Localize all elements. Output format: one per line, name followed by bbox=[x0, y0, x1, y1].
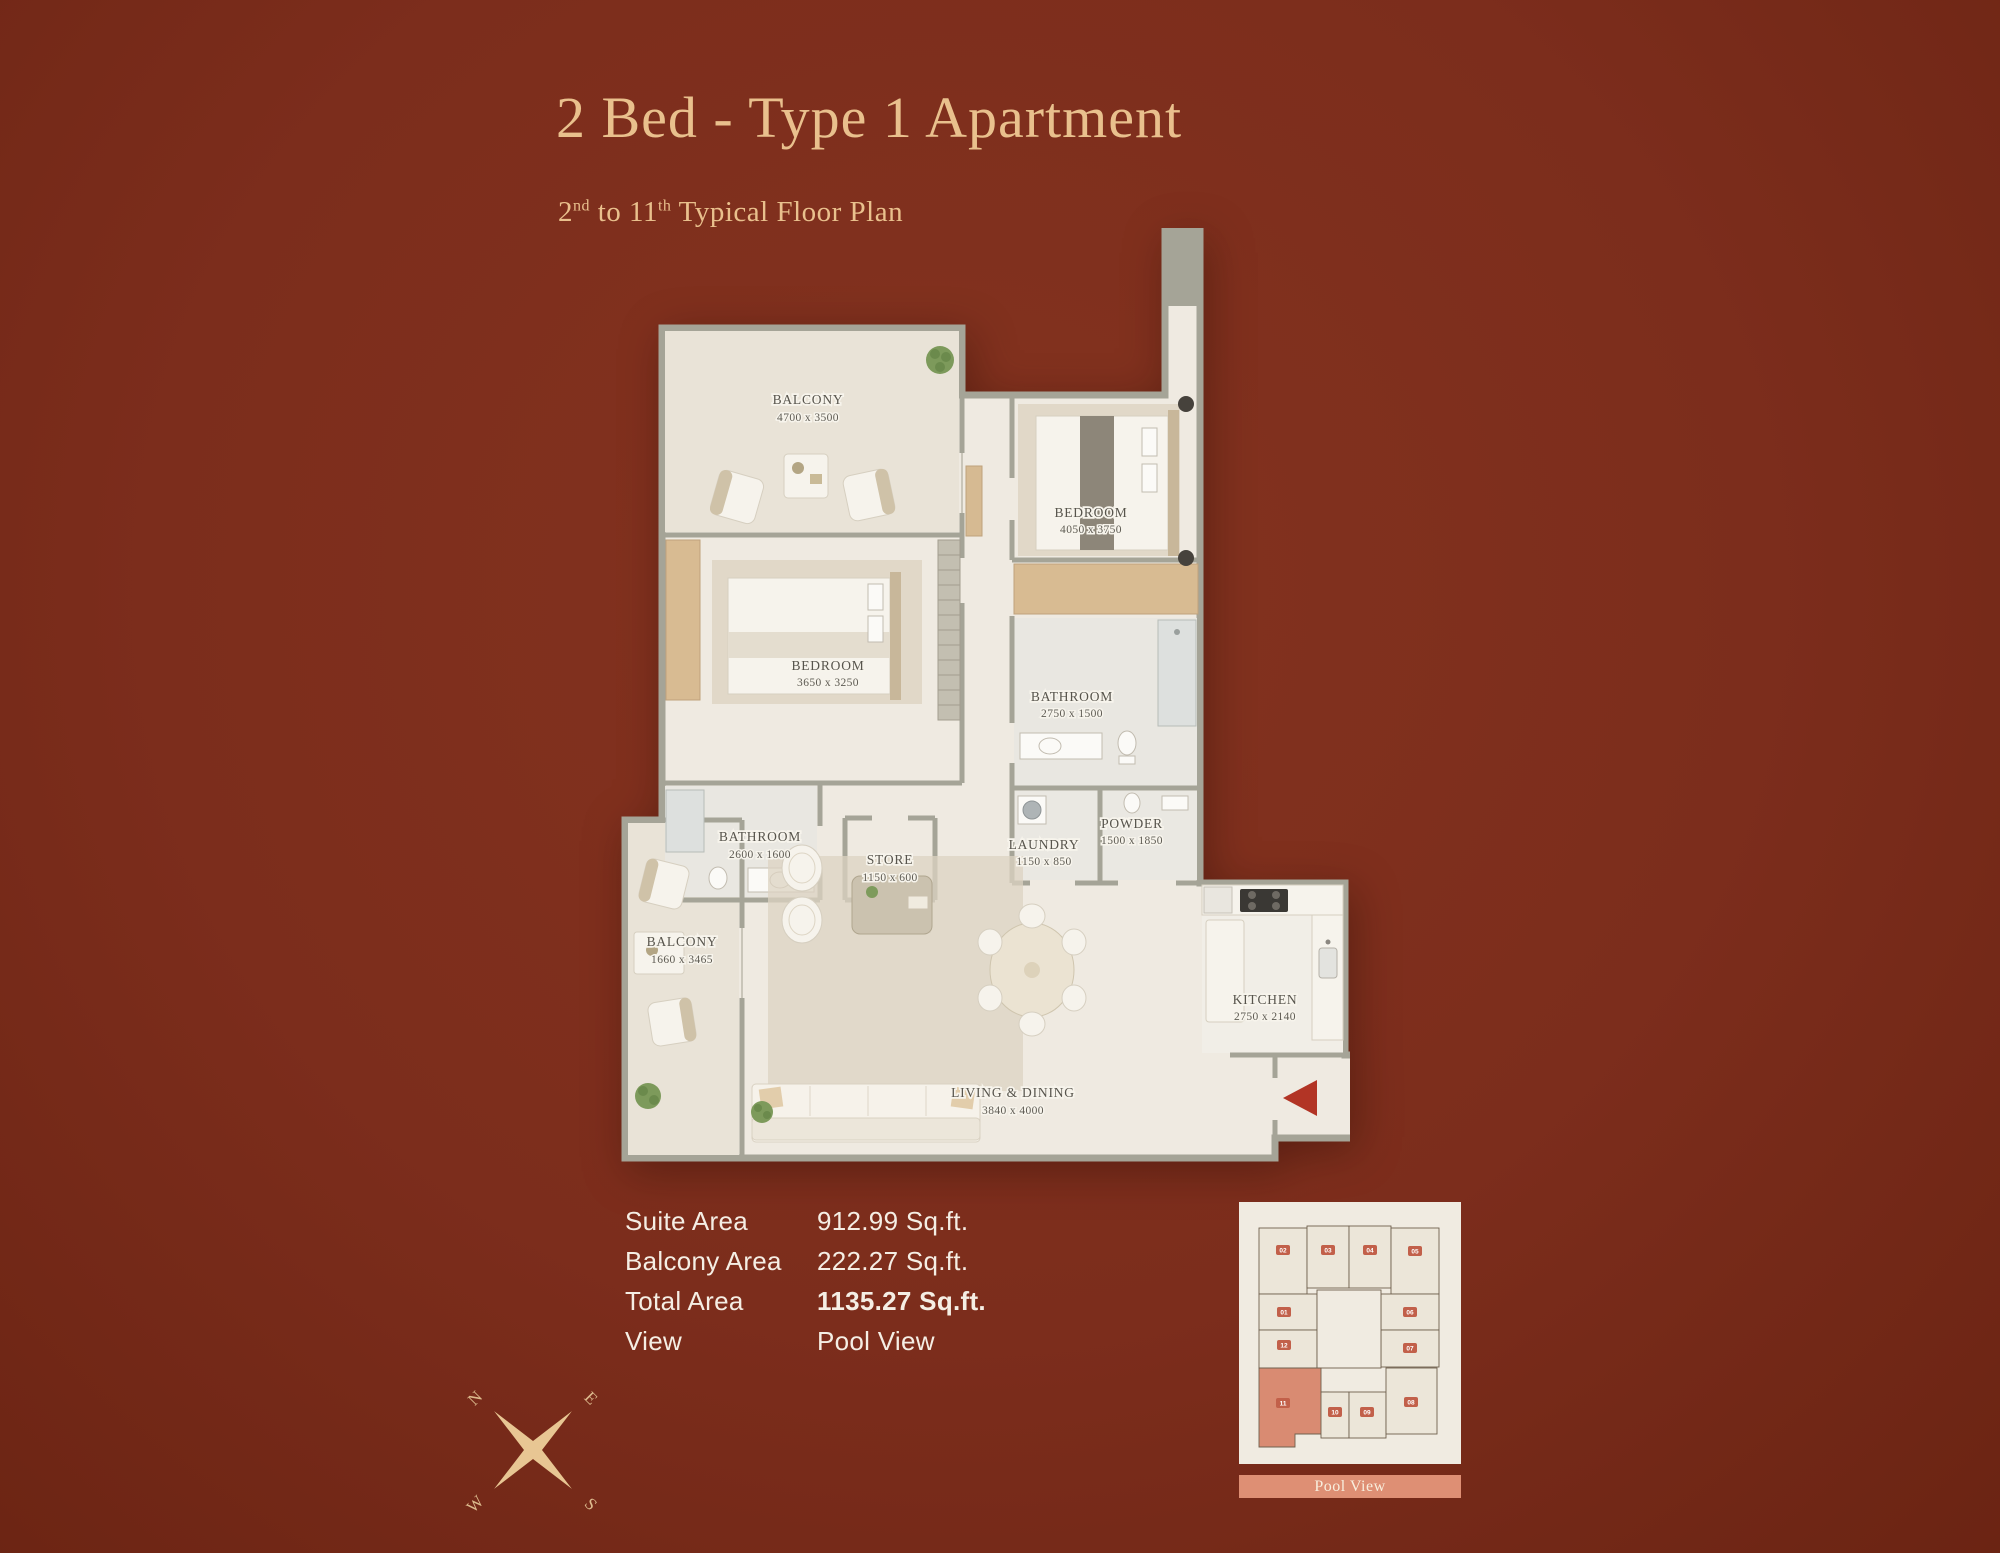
key-plan-drawing: 02 03 04 05 01 12 06 07 11 10 09 08 bbox=[1239, 1202, 1461, 1464]
area-value: 912.99 Sq.ft. bbox=[817, 1206, 986, 1237]
hall-console bbox=[966, 466, 982, 536]
unit-number: 05 bbox=[1411, 1249, 1419, 1256]
unit-number: 01 bbox=[1280, 1310, 1288, 1317]
unit-number: 07 bbox=[1406, 1346, 1414, 1353]
room-label: BALCONY bbox=[647, 934, 718, 949]
page-title: 2 Bed - Type 1 Apartment bbox=[556, 84, 1182, 151]
room-label: BATHROOM bbox=[719, 829, 801, 844]
room-dims: 3650 x 3250 bbox=[797, 677, 859, 689]
unit-number: 02 bbox=[1279, 1248, 1287, 1255]
room-dims: 3840 x 4000 bbox=[982, 1105, 1044, 1117]
view-label-bar: Pool View bbox=[1239, 1475, 1461, 1498]
plant bbox=[751, 1101, 773, 1123]
key-plan-units bbox=[1259, 1226, 1439, 1447]
area-value: 222.27 Sq.ft. bbox=[817, 1246, 986, 1277]
balcony-1-floor bbox=[665, 331, 959, 532]
closet-strip bbox=[666, 540, 700, 700]
bedroom-1-furniture bbox=[1018, 396, 1194, 566]
unit-number: 08 bbox=[1407, 1400, 1415, 1407]
room-label: BALCONY bbox=[773, 392, 844, 407]
room-dims: 1500 x 1850 bbox=[1101, 835, 1163, 847]
room-label: LAUNDRY bbox=[1009, 837, 1080, 852]
floor-plan-page: 2 Bed - Type 1 Apartment 2nd to 11th Typ… bbox=[0, 0, 2000, 1553]
area-label: Suite Area bbox=[625, 1206, 817, 1237]
ordinal-suffix: nd bbox=[573, 197, 590, 214]
wardrobe bbox=[938, 540, 960, 720]
room-dims: 1660 x 3465 bbox=[651, 954, 713, 966]
room-dims: 4050 x 3750 bbox=[1060, 524, 1122, 536]
compass-south: S bbox=[581, 1494, 601, 1514]
floor-plan: BALCONY 4700 x 3500 BEDROOM 4050 x 3750 … bbox=[620, 228, 1350, 1168]
unit-number: 06 bbox=[1406, 1310, 1414, 1317]
wall-stub bbox=[1165, 230, 1200, 306]
room-label: BEDROOM bbox=[1054, 505, 1127, 520]
compass-icon: N E S W bbox=[453, 1370, 613, 1530]
room-label: STORE bbox=[867, 852, 914, 867]
compass-west: W bbox=[463, 1491, 488, 1516]
area-label: Balcony Area bbox=[625, 1246, 817, 1277]
plant bbox=[926, 346, 954, 374]
compass-east: E bbox=[580, 1388, 601, 1409]
room-dims: 2600 x 1600 bbox=[729, 849, 791, 861]
room-dims: 1150 x 850 bbox=[1016, 856, 1071, 868]
area-label: Total Area bbox=[625, 1286, 817, 1317]
unit-number-highlighted: 11 bbox=[1280, 1401, 1287, 1408]
unit-number: 03 bbox=[1324, 1248, 1332, 1255]
unit-number: 09 bbox=[1363, 1410, 1371, 1417]
area-details: Suite Area 912.99 Sq.ft. Balcony Area 22… bbox=[625, 1206, 986, 1357]
ordinal-suffix: th bbox=[658, 197, 671, 214]
room-dims: 1150 x 600 bbox=[862, 872, 917, 884]
laundry-fixtures bbox=[1018, 796, 1046, 824]
area-label: View bbox=[625, 1326, 817, 1357]
area-value-total: 1135.27 Sq.ft. bbox=[817, 1286, 986, 1317]
room-label: KITCHEN bbox=[1233, 992, 1298, 1007]
sofa bbox=[752, 1084, 980, 1142]
room-dims: 2750 x 2140 bbox=[1234, 1011, 1296, 1023]
room-dims: 4700 x 3500 bbox=[777, 412, 839, 424]
unit-number: 04 bbox=[1366, 1248, 1374, 1255]
floor-plan-drawing: BALCONY 4700 x 3500 BEDROOM 4050 x 3750 … bbox=[620, 228, 1350, 1168]
room-label: BEDROOM bbox=[791, 658, 864, 673]
area-value: Pool View bbox=[817, 1326, 986, 1357]
unit-number: 12 bbox=[1280, 1343, 1288, 1350]
room-label: LIVING & DINING bbox=[951, 1085, 1075, 1100]
compass-north: N bbox=[464, 1387, 486, 1409]
compass-rose: N E S W bbox=[453, 1370, 613, 1530]
room-dims: 2750 x 1500 bbox=[1041, 708, 1103, 720]
room-label: POWDER bbox=[1101, 816, 1163, 831]
page-subtitle: 2nd to 11th Typical Floor Plan bbox=[558, 196, 903, 229]
key-plan: 02 03 04 05 01 12 06 07 11 10 09 08 Pool… bbox=[1239, 1202, 1461, 1498]
wardrobe-strip bbox=[1014, 564, 1198, 614]
unit-number: 10 bbox=[1331, 1410, 1339, 1417]
room-label: BATHROOM bbox=[1031, 689, 1113, 704]
